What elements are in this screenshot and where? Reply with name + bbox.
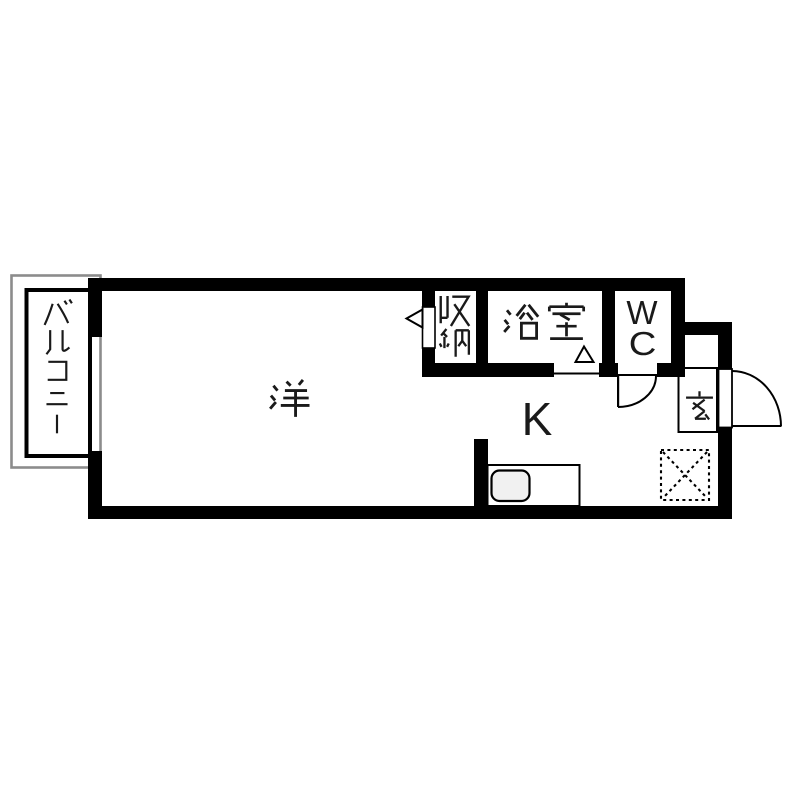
svg-text:K: K [522,393,553,445]
svg-text:C: C [629,326,657,363]
